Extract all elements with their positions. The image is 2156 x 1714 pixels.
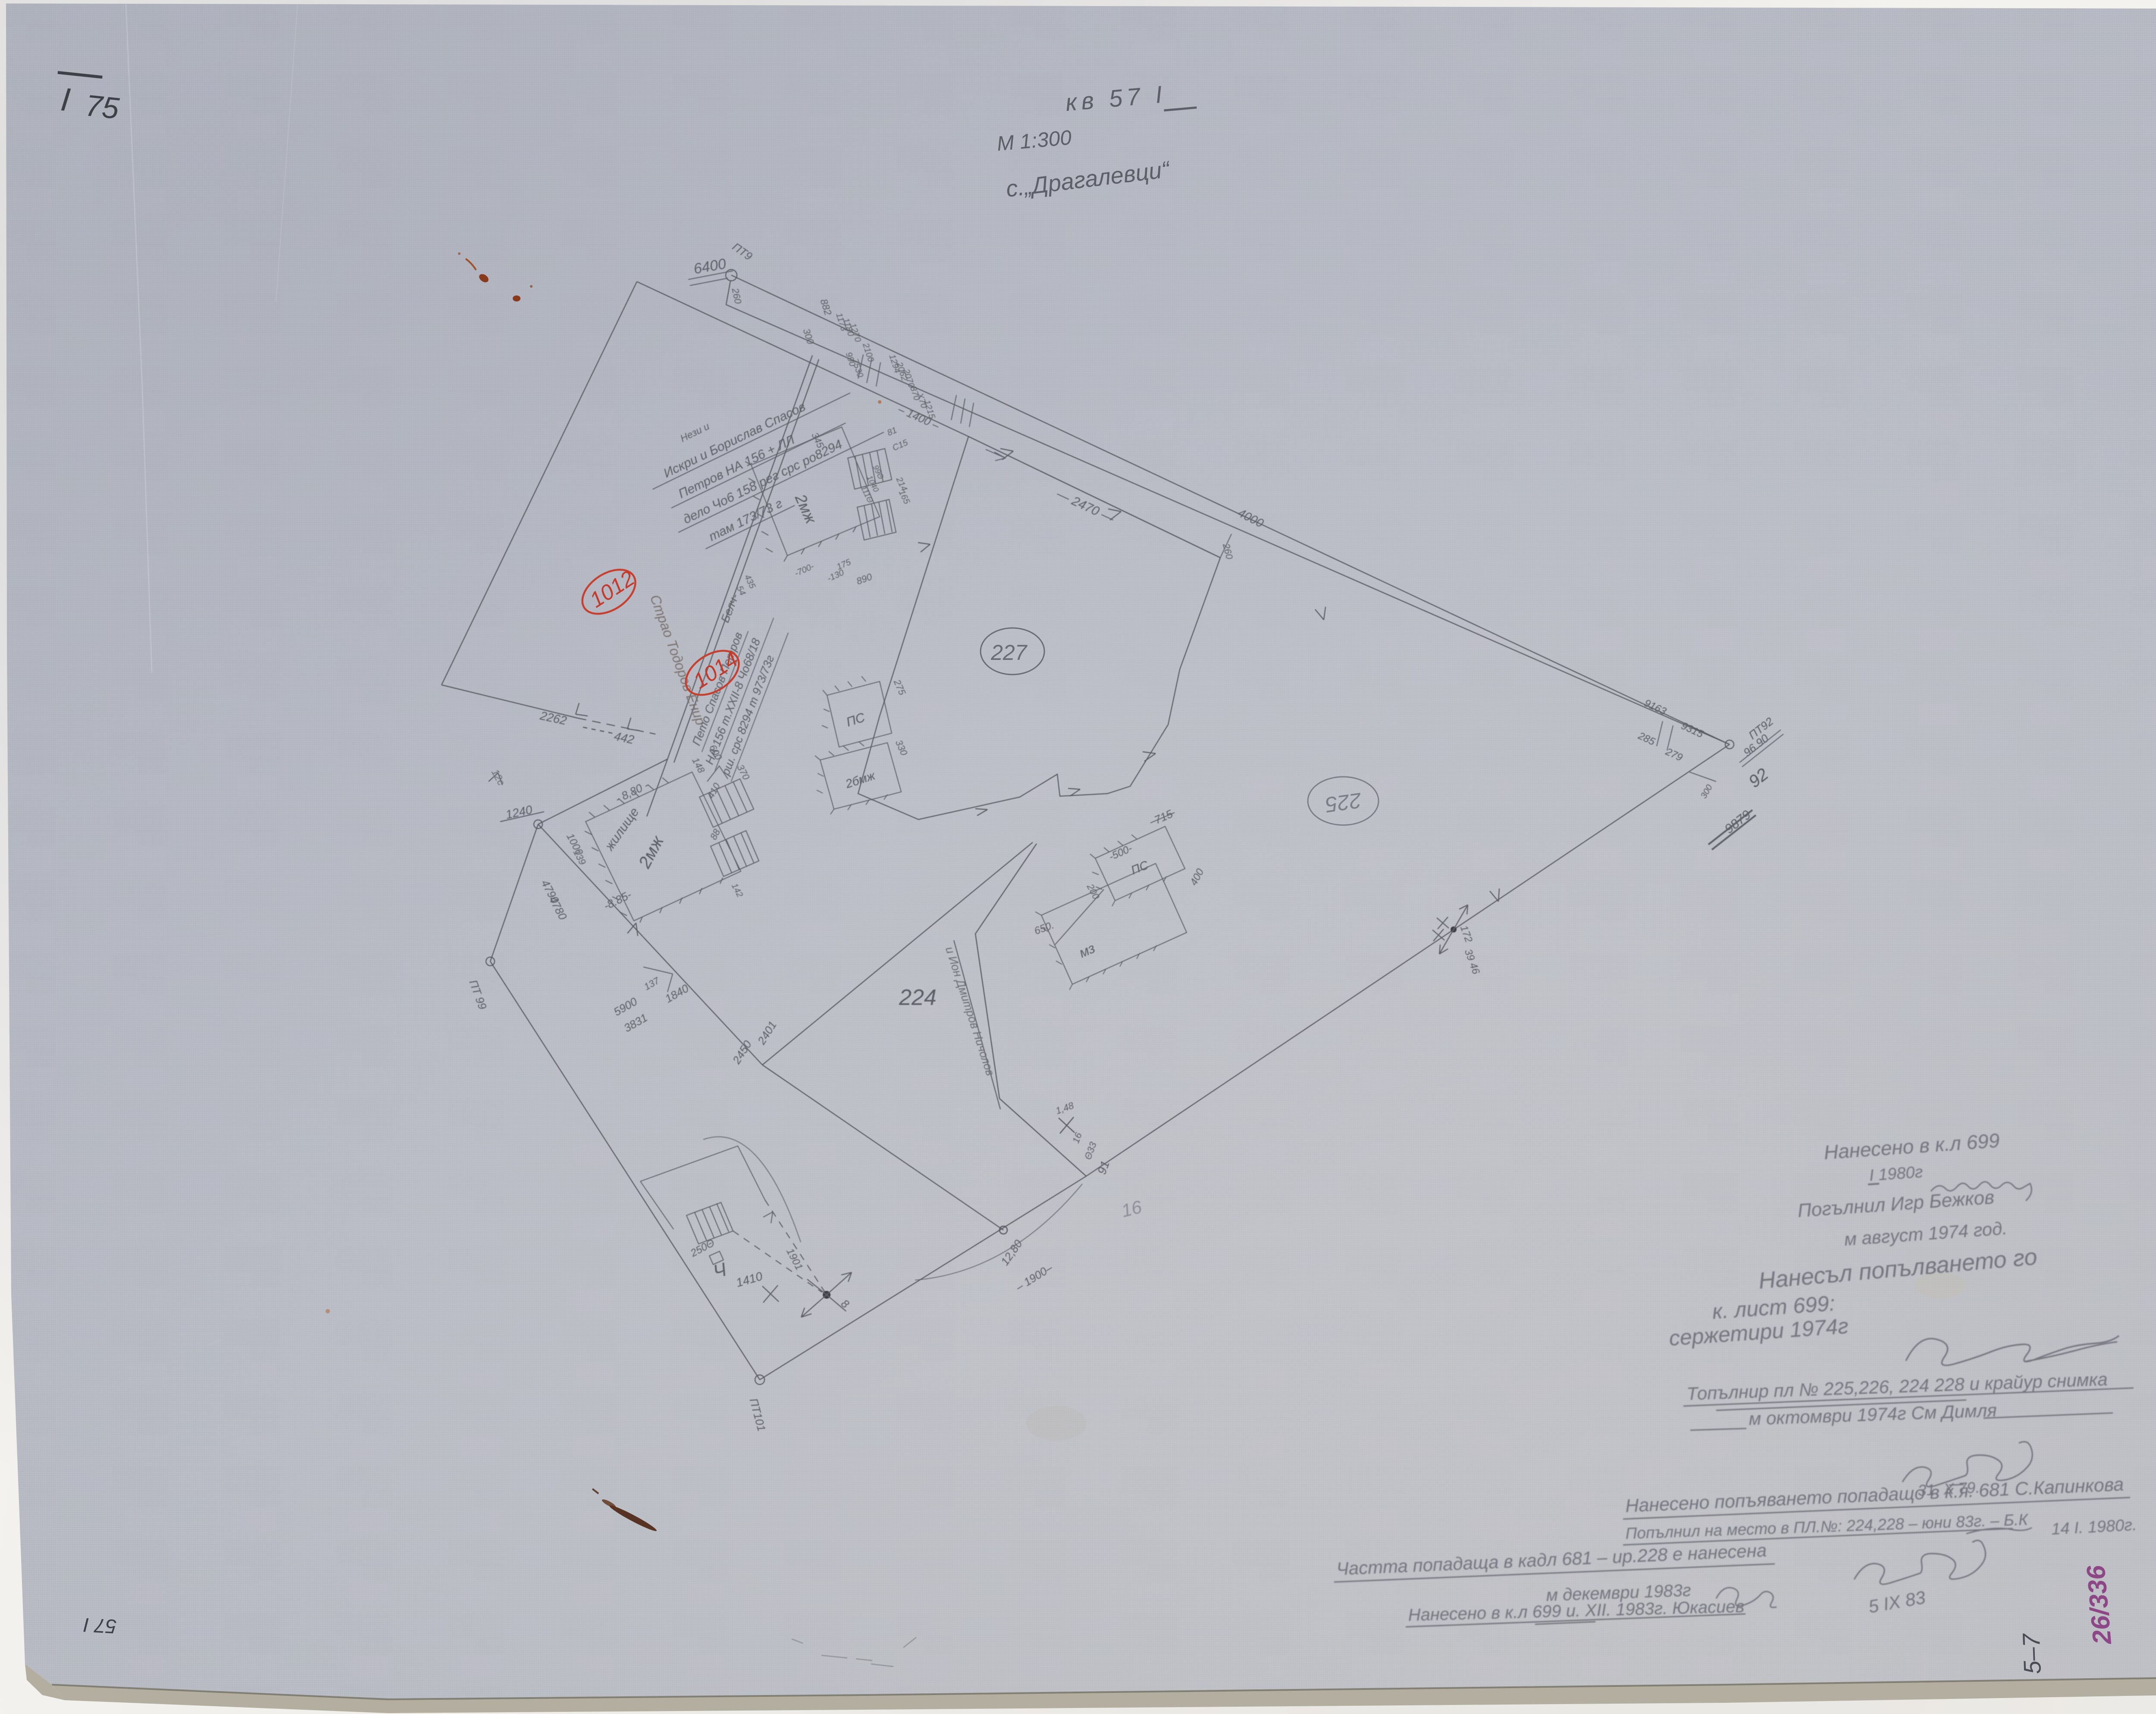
svg-text:5–7: 5–7 <box>2018 1632 2046 1674</box>
svg-text:225: 225 <box>1324 788 1363 817</box>
svg-text:227: 227 <box>990 640 1028 665</box>
svg-text:75: 75 <box>84 88 121 126</box>
svg-text:I 1980г: I 1980г <box>1869 1163 1924 1185</box>
svg-text:57 I: 57 I <box>83 1614 117 1638</box>
svg-text:224: 224 <box>899 985 937 1010</box>
